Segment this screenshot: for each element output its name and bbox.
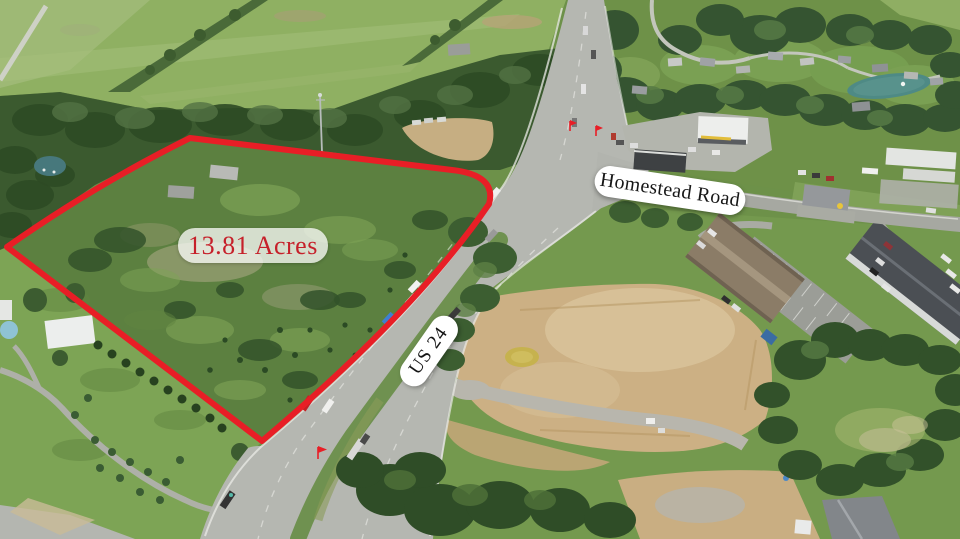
pool xyxy=(0,321,18,339)
shed xyxy=(0,300,12,320)
aerial-photo: 13.81 Acres Homestead Road US 24 xyxy=(0,0,960,539)
white-barn xyxy=(44,315,95,349)
store-sign xyxy=(611,133,616,140)
acreage-label: 13.81 Acres xyxy=(178,228,328,263)
small-pond xyxy=(34,156,66,176)
trailer xyxy=(794,519,811,534)
umbrella xyxy=(837,203,843,209)
aerial-photo-canvas xyxy=(0,0,960,539)
fountain xyxy=(901,82,905,86)
